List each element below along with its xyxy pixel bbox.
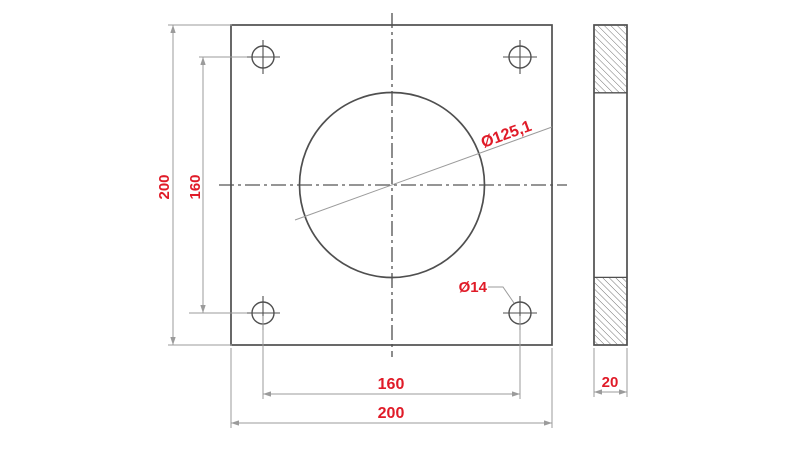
dimension-bolt-hole-diameter-label: Ø14 [459, 279, 488, 296]
dimension-bolt-spacing-horizontal-label: 160 [378, 376, 405, 393]
section-hatch-top [595, 26, 626, 93]
side-section-view [594, 25, 627, 345]
technical-drawing-svg: 200 160 160 200 Ø125,1 Ø14 20 [0, 0, 800, 450]
dimension-bore-diameter-label: Ø125,1 [479, 118, 534, 152]
dimension-bolt-spacing-vertical-label: 160 [187, 174, 204, 199]
drawing-canvas: 200 160 160 200 Ø125,1 Ø14 20 [0, 0, 800, 450]
leader-line [488, 287, 514, 303]
dimension-plate-height-label: 200 [156, 174, 173, 199]
bolt-hole-top-left [246, 40, 280, 74]
dimension-bore-diameter: Ø125,1 [295, 118, 552, 220]
dimension-bolt-hole-diameter: Ø14 [459, 279, 514, 303]
dimension-plate-width-label: 200 [378, 405, 405, 422]
section-hatch-bottom [595, 277, 626, 344]
dimension-thickness-label: 20 [602, 374, 619, 391]
bolt-hole-top-right [503, 40, 537, 74]
dimension-thickness: 20 [594, 348, 627, 397]
